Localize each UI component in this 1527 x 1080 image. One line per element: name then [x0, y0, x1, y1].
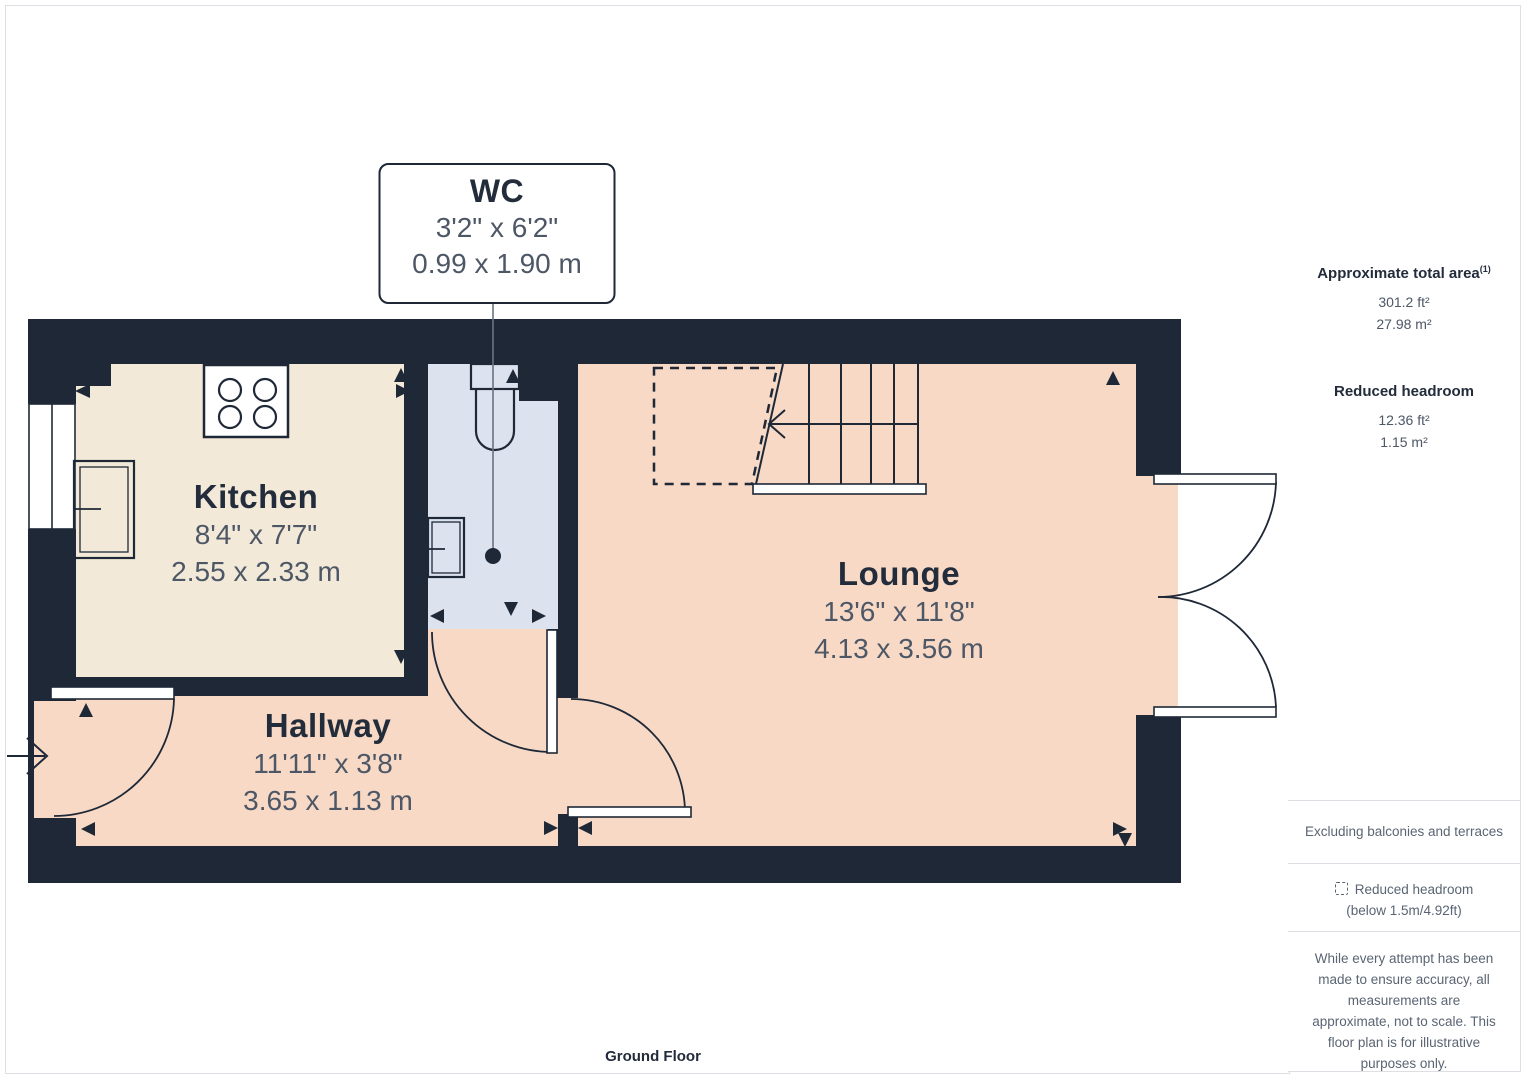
french-door-top-leaf: [1154, 474, 1276, 484]
disclaimer-text: While every attempt has been made to ens…: [1312, 949, 1496, 1075]
legend-label: Reduced headroom: [1355, 882, 1474, 897]
wc-room-name: WC: [381, 173, 614, 210]
wc-door-leaf: [547, 630, 557, 753]
excluding-note-section: Excluding balconies and terraces: [1288, 800, 1520, 863]
stove-icon: [204, 365, 288, 437]
hallway-room-name: Hallway: [243, 707, 413, 745]
lounge-room-name: Lounge: [814, 555, 984, 593]
floorplan-page: WC 3'2" x 6'2" 0.99 x 1.90 m Kitchen 8'4…: [0, 0, 1527, 1080]
kitchen-window: [29, 404, 75, 529]
approx-area-footnote-marker: (1): [1480, 264, 1491, 274]
dashed-area-icon: [1335, 882, 1348, 895]
reduced-headroom-m: 1.15 m²: [1288, 431, 1520, 453]
kitchen-dim-metric: 2.55 x 2.33 m: [171, 553, 341, 590]
plan-panel: WC 3'2" x 6'2" 0.99 x 1.90 m Kitchen 8'4…: [5, 5, 1290, 1074]
area-summary-section: Approximate total area(1) 301.2 ft² 27.9…: [1288, 6, 1520, 800]
floor-name-label: Ground Floor: [605, 1048, 701, 1065]
lounge-dim-imperial: 13'6" x 11'8": [814, 593, 984, 630]
approx-area-m: 27.98 m²: [1288, 313, 1520, 335]
hallway-dim-metric: 3.65 x 1.13 m: [243, 782, 413, 819]
reduced-headroom-legend: Reduced headroom (below 1.5m/4.92ft): [1288, 863, 1520, 931]
wc-dim-metric: 0.99 x 1.90 m: [381, 246, 614, 282]
lounge-dim-metric: 4.13 x 3.56 m: [814, 630, 984, 667]
hallway-label: Hallway 11'11" x 3'8" 3.65 x 1.13 m: [243, 707, 413, 819]
approximate-total-area-block: Approximate total area(1) 301.2 ft² 27.9…: [1288, 264, 1520, 335]
wc-dim-imperial: 3'2" x 6'2": [381, 210, 614, 246]
wc-callout: WC 3'2" x 6'2" 0.99 x 1.90 m: [379, 163, 616, 304]
approx-area-ft: 301.2 ft²: [1288, 291, 1520, 313]
lounge-label: Lounge 13'6" x 11'8" 4.13 x 3.56 m: [814, 555, 984, 667]
lounge-door-leaf: [568, 807, 691, 817]
french-door-bottom-leaf: [1154, 707, 1276, 717]
reduced-headroom-ft: 12.36 ft²: [1288, 409, 1520, 431]
kitchen-room-name: Kitchen: [171, 478, 341, 516]
legend-line-1: Reduced headroom: [1288, 879, 1520, 900]
approx-area-title: Approximate total area(1): [1288, 264, 1520, 282]
stair-base-step: [753, 484, 926, 494]
legend-sub: (below 1.5m/4.92ft): [1288, 900, 1520, 921]
hallway-dim-imperial: 11'11" x 3'8": [243, 745, 413, 782]
info-sidebar: Approximate total area(1) 301.2 ft² 27.9…: [1288, 5, 1521, 1072]
approx-area-title-text: Approximate total area: [1317, 265, 1480, 282]
hallway-floor-wc-door-area: [426, 629, 548, 698]
entry-door-leaf: [51, 687, 174, 699]
reduced-headroom-block: Reduced headroom 12.36 ft² 1.15 m²: [1288, 383, 1520, 453]
kitchen-label: Kitchen 8'4" x 7'7" 2.55 x 2.33 m: [171, 478, 341, 590]
reduced-headroom-title: Reduced headroom: [1288, 383, 1520, 400]
excluding-note-text: Excluding balconies and terraces: [1305, 824, 1503, 839]
kitchen-dim-imperial: 8'4" x 7'7": [171, 516, 341, 553]
disclaimer-section: While every attempt has been made to ens…: [1288, 931, 1520, 1080]
